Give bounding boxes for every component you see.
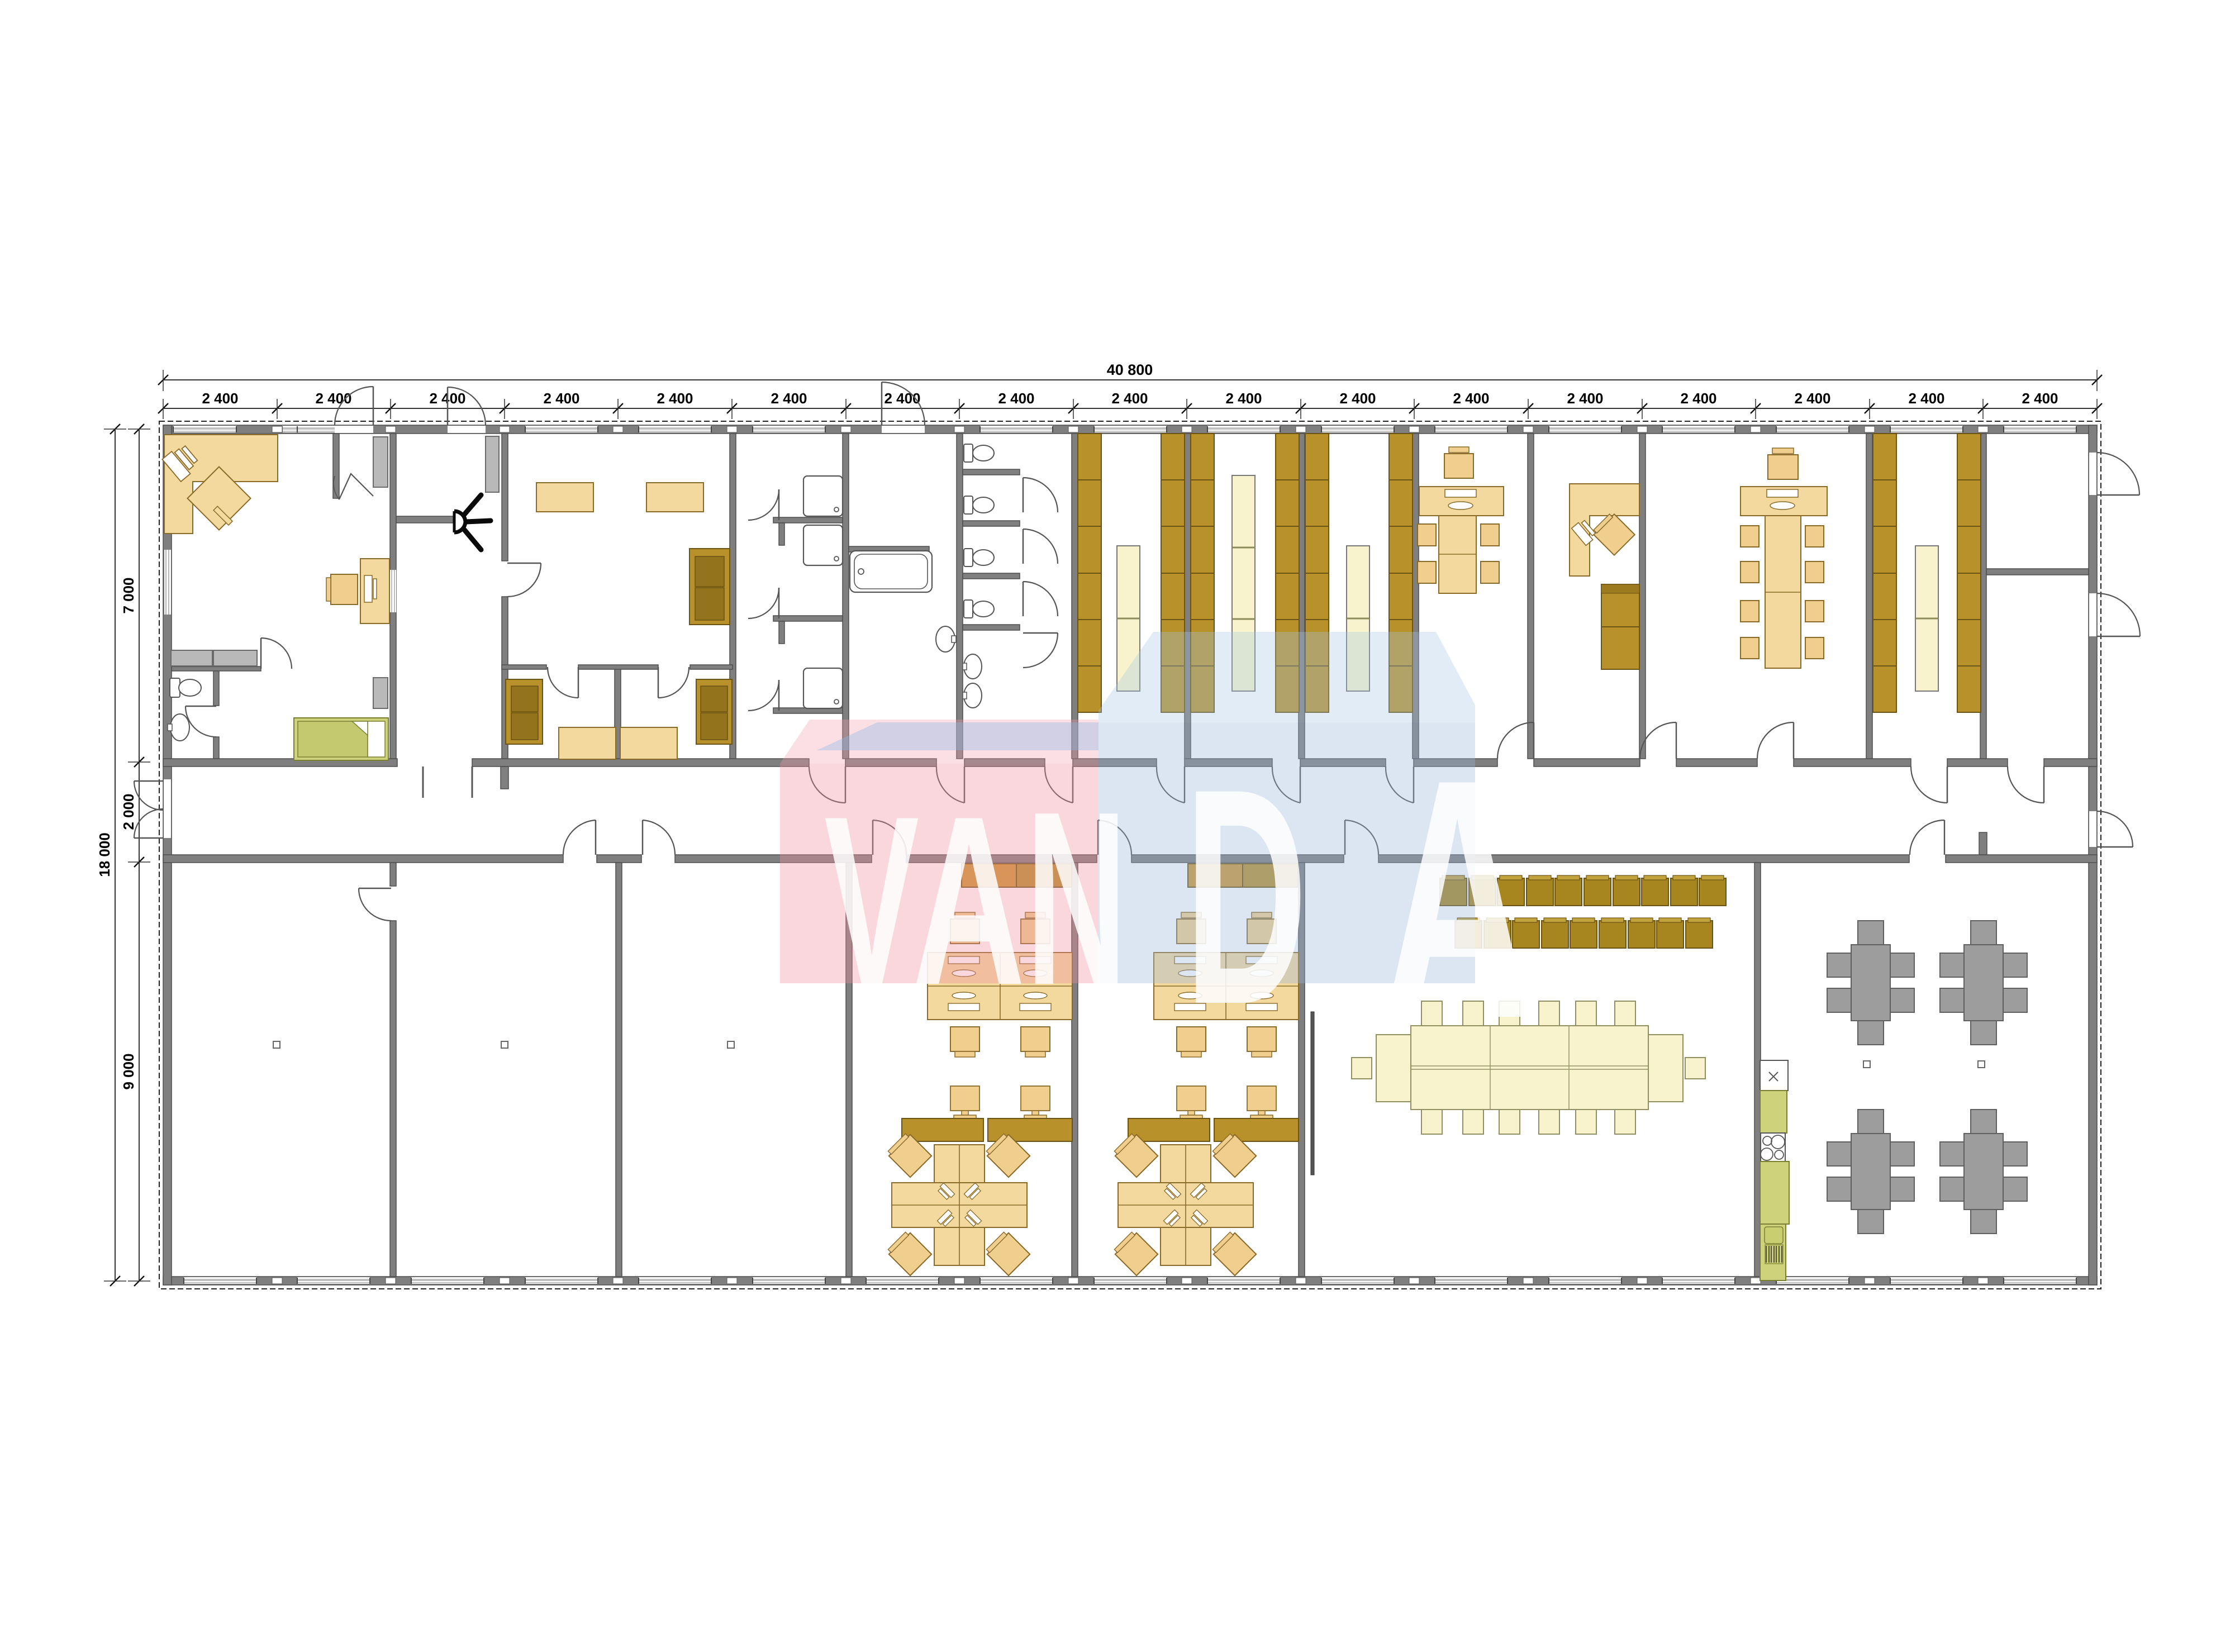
svg-text:2 400: 2 400 bbox=[1225, 390, 1262, 407]
svg-text:2 400: 2 400 bbox=[1339, 390, 1376, 407]
svg-text:2 400: 2 400 bbox=[998, 390, 1034, 407]
svg-text:A: A bbox=[1381, 709, 1533, 1089]
svg-text:2 400: 2 400 bbox=[1567, 390, 1603, 407]
svg-text:A: A bbox=[912, 767, 1025, 1035]
svg-text:18 000: 18 000 bbox=[96, 832, 113, 877]
svg-text:7 000: 7 000 bbox=[120, 577, 137, 613]
svg-text:2 400: 2 400 bbox=[543, 390, 579, 407]
svg-text:2 400: 2 400 bbox=[202, 390, 238, 407]
svg-text:D: D bbox=[1185, 725, 1307, 1068]
svg-text:2 000: 2 000 bbox=[120, 793, 137, 830]
svg-text:2 400: 2 400 bbox=[771, 390, 807, 407]
svg-text:2 400: 2 400 bbox=[1453, 390, 1489, 407]
svg-text:2 400: 2 400 bbox=[2022, 390, 2058, 407]
svg-text:2 400: 2 400 bbox=[1794, 390, 1830, 407]
svg-text:2 400: 2 400 bbox=[1111, 390, 1148, 407]
svg-text:40 800: 40 800 bbox=[1107, 361, 1153, 378]
svg-text:9 000: 9 000 bbox=[120, 1053, 137, 1089]
svg-text:V: V bbox=[824, 767, 920, 1035]
svg-text:2 400: 2 400 bbox=[657, 390, 693, 407]
svg-text:N: N bbox=[1026, 760, 1127, 1036]
svg-text:2 400: 2 400 bbox=[1680, 390, 1716, 407]
svg-text:2 400: 2 400 bbox=[1908, 390, 1944, 407]
